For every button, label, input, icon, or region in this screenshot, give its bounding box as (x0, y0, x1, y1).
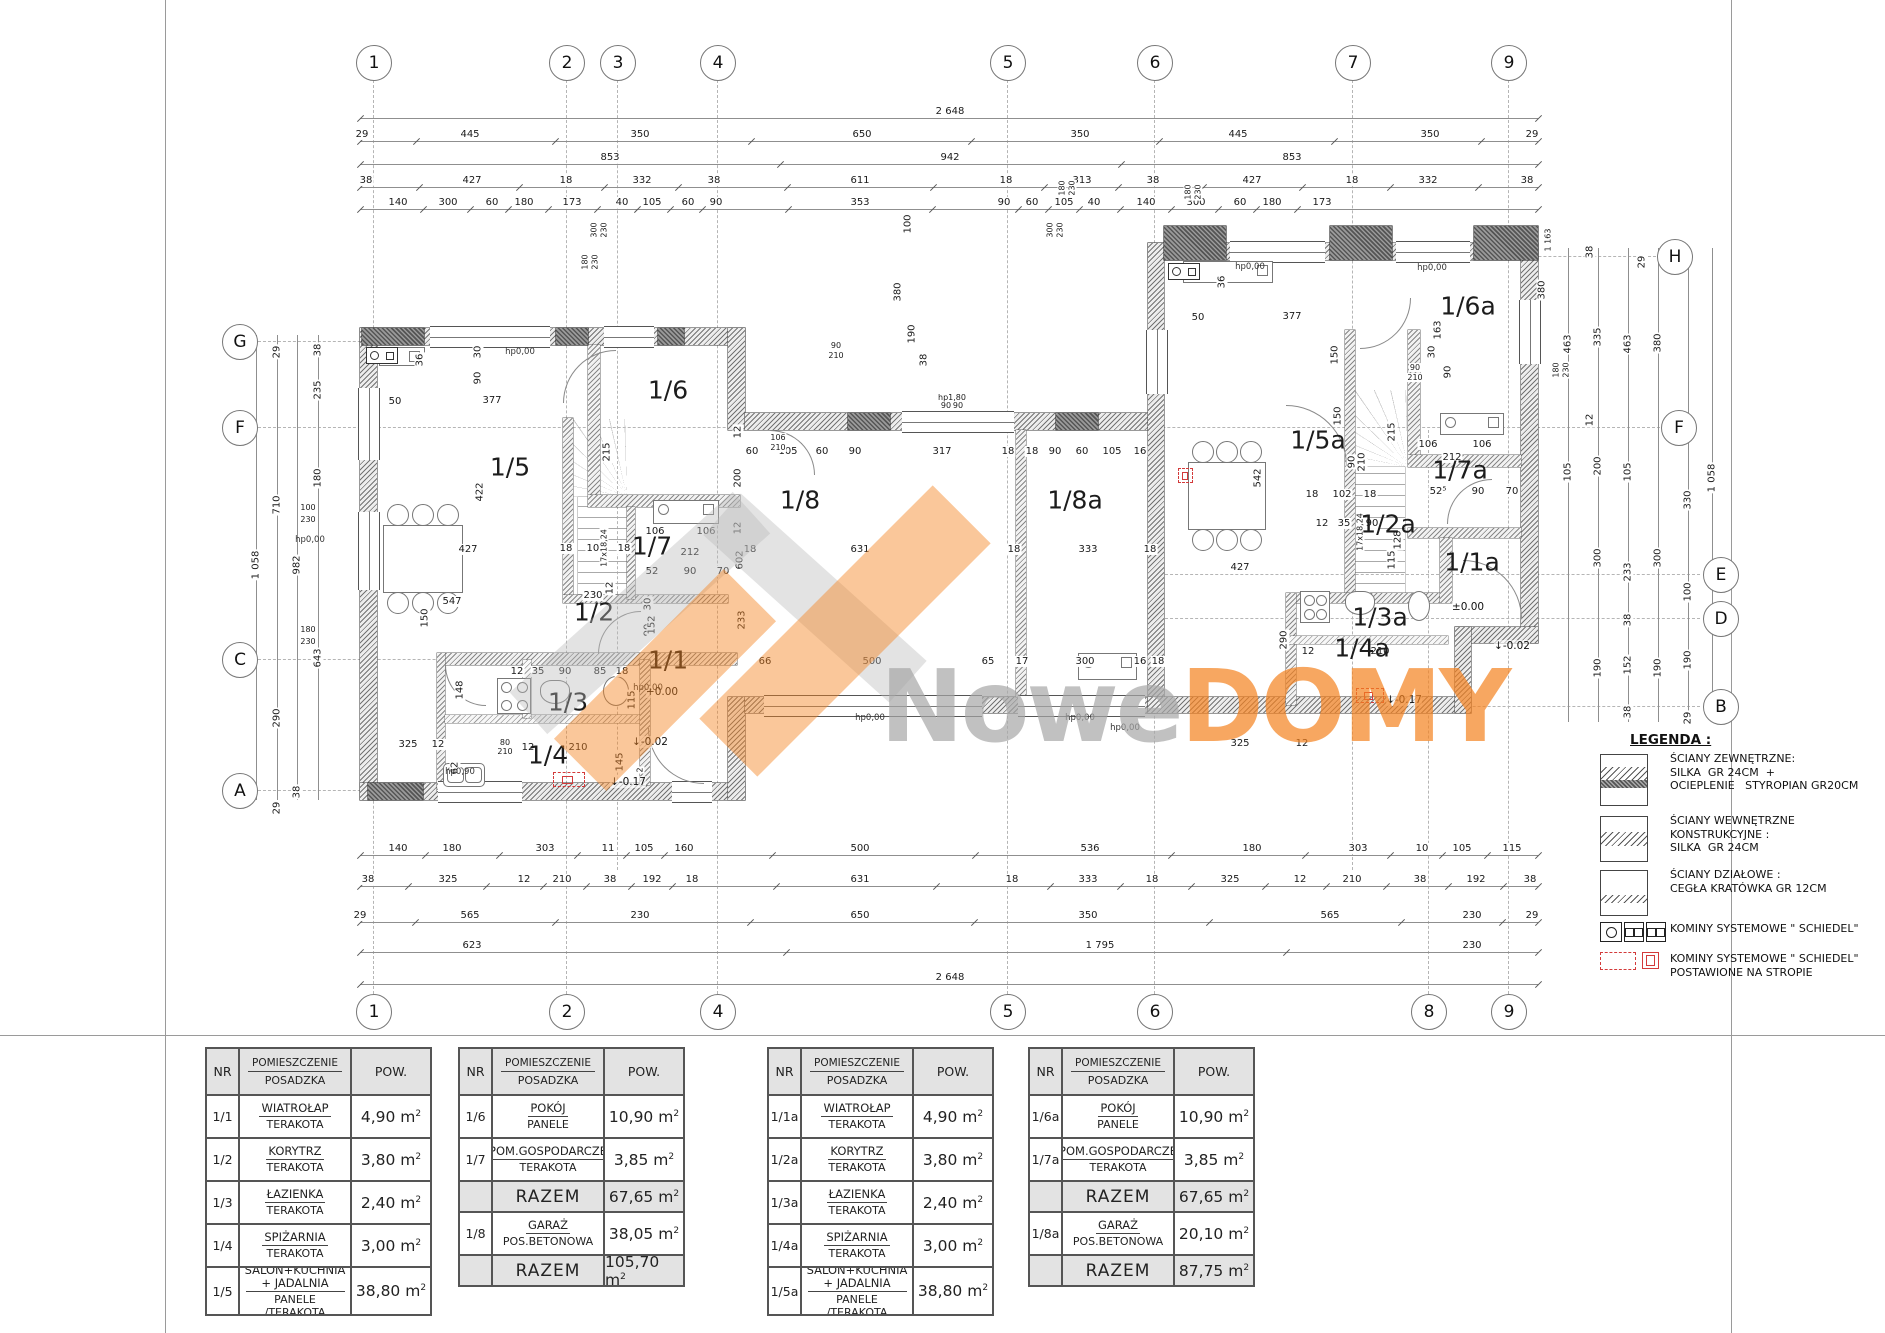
dimension-label: 105 (1563, 461, 1574, 482)
legend: LEGENDA : ŚCIANY ZEWNĘTRZNE: SILKA GR 24… (1596, 732, 1885, 972)
dimension-label: 325 (437, 874, 458, 885)
dimension-label: 290 (272, 707, 283, 728)
dimension-label: 710 (272, 494, 283, 515)
legend-chimney-icon (1646, 922, 1666, 942)
dimension-label: 180 (1241, 843, 1262, 854)
dimension-label: 300 (1593, 547, 1604, 568)
legend-items: ŚCIANY ZEWNĘTRZNE: SILKA GR 24CM + OCIEP… (1596, 752, 1885, 972)
table-razem-area: 105,70 m2 (604, 1255, 684, 1286)
dimension-label: 192 (1465, 874, 1486, 885)
dimension-label: 565 (459, 910, 480, 921)
dimension-label: 90 (1471, 486, 1486, 497)
dimension-label: 60 (745, 446, 760, 457)
dimension-label: 210 (1357, 451, 1368, 472)
chimney-icon (366, 347, 398, 364)
floor-plan-sheet: { "watermark":{"text_gray":"Nowe","text_… (0, 0, 1885, 1333)
dimension-label: 180 (1261, 197, 1282, 208)
dimension-label: 602 (735, 549, 746, 570)
table-cell-area: 38,80 m2 (351, 1267, 431, 1315)
room-schedule-table: NRPOMIESZCZENIEPOSADZKAPOW.1/6aPOKÓJPANE… (1028, 1047, 1255, 1287)
table-cell-nr: 1/7 (459, 1138, 492, 1181)
chimney-red-icon (553, 772, 585, 787)
legend-item-text: ŚCIANY WEWNĘTRZNE KONSTRUKCYJNE : SILKA … (1670, 814, 1795, 855)
dimension-label: 150 (420, 607, 431, 628)
dimension-label: 445 (1227, 129, 1248, 140)
dimension-label: 38 (1623, 613, 1634, 628)
dimension-label: 210 (827, 351, 844, 360)
dimension-label: 17 (1015, 656, 1030, 667)
dimension-label: 631 (849, 874, 870, 885)
table-header-room: POMIESZCZENIEPOSADZKA (492, 1048, 604, 1095)
dimension-label: 52 (645, 566, 660, 577)
table-cell-room: SALON+KUCHNIA+ JADALNIAPANELE /TERAKOTA (239, 1267, 351, 1315)
dimension-tick (1535, 852, 1542, 859)
dimension-label: 18 (617, 543, 632, 554)
dimension-label: 190 (1653, 657, 1664, 678)
dimension-label: 80 (499, 738, 511, 747)
chair-icon (437, 504, 459, 526)
dimension-label: 212 (679, 547, 700, 558)
dimension-label: 30 (1427, 345, 1438, 360)
dimension-label: 2 648 (935, 972, 966, 983)
chair-icon (1240, 441, 1262, 463)
dimension-label: 18 (1345, 175, 1360, 186)
dimension-label: 50 (388, 396, 403, 407)
chair-icon (1240, 529, 1262, 551)
table-cell-area: 10,90 m2 (1174, 1095, 1254, 1138)
legend-swatch-partition-wall (1600, 870, 1648, 916)
chimney-wall-block (1330, 226, 1392, 260)
chimney-red-icon (1356, 688, 1384, 703)
dimension-label: 29 (1525, 910, 1540, 921)
dimension-label: 60 (1025, 197, 1040, 208)
table-cell-area: 2,40 m2 (913, 1181, 993, 1224)
dimension-label: 230 (299, 637, 316, 646)
door-swing (1360, 298, 1411, 349)
dimension-label: 190 (1683, 649, 1694, 670)
dimension-label: 18 (685, 874, 700, 885)
dimension-label: 427 (1241, 175, 1262, 186)
dimension-label: 38 (292, 785, 303, 800)
table-cell-room: SPIŻARNIATERAKOTA (239, 1224, 351, 1267)
dimension-label: 140 (387, 843, 408, 854)
dimension-label: 317 (931, 446, 952, 457)
dimension-label: 38 (1585, 245, 1596, 260)
dimension-label: 60 (681, 197, 696, 208)
dimension-label: 106 (1417, 439, 1438, 450)
dimension-line (360, 187, 1538, 188)
dimension-label: 303 (534, 843, 555, 854)
table-cell-nr: 1/7a (1029, 1138, 1062, 1181)
room-label: 1/5a (1290, 426, 1346, 455)
dimension-label: 180 (513, 197, 534, 208)
dimension-label: 12 (431, 739, 446, 750)
room-label: 1/8 (780, 486, 820, 515)
level-label: ↓-0.02 (632, 736, 668, 748)
dimension-label: 152 (647, 614, 658, 635)
wall-ext (1148, 243, 1164, 713)
dimension-label: 38 (919, 353, 930, 368)
table-header-area: POW. (1174, 1048, 1254, 1095)
wall-ext (728, 697, 745, 800)
table-cell-room: POKÓJPANELE (1062, 1095, 1174, 1138)
dimension-label: 140 (387, 197, 408, 208)
dimension-label: 2 (636, 766, 645, 773)
legend-chimney-red-icon (1642, 952, 1659, 969)
dimension-label: 335 (1593, 326, 1604, 347)
room-label: 1/3 (548, 688, 588, 717)
legend-hatch (1601, 832, 1647, 846)
dimension-label: 90 (1409, 363, 1421, 372)
table-cell-nr: 1/3 (206, 1181, 239, 1224)
table-icon (383, 525, 463, 593)
window (1146, 330, 1168, 394)
legend-hatch (1601, 767, 1647, 780)
dimension-line (360, 952, 1538, 953)
grid-bubble-top: 1 (356, 45, 392, 81)
room-label: 1/8a (1047, 486, 1103, 515)
door-swing (445, 665, 486, 706)
window-sill-label: hp0,00 (505, 347, 535, 357)
dimension-label: 18 (1151, 656, 1166, 667)
table-header-room: POMIESZCZENIEPOSADZKA (801, 1048, 913, 1095)
dimension-label: 38 (1623, 705, 1634, 720)
dimension-label: 18 (615, 666, 630, 677)
window-sill-label: hp0,00 (855, 713, 885, 723)
room-schedule-table: NRPOMIESZCZENIEPOSADZKAPOW.1/1WIATROŁAPT… (205, 1047, 432, 1316)
dimension-label: 611 (849, 175, 870, 186)
table-cell-area: 3,85 m2 (1174, 1138, 1254, 1181)
washbasin-icon (1408, 591, 1430, 621)
grid-line-horizontal (1160, 574, 1700, 575)
dimension-label: 90 (473, 371, 484, 386)
dimension-line (277, 335, 278, 800)
dimension-label: 35 (531, 666, 546, 677)
grid-bubble-right: E (1703, 557, 1739, 593)
chimney-wall-block (1164, 226, 1226, 260)
table-cell-room: GARAŻPOS.BETONOWA (1062, 1212, 1174, 1255)
dimension-label: 17x18,24 (600, 528, 609, 568)
door-swing (563, 350, 616, 403)
chimney-wall-block (362, 328, 424, 345)
chair-icon (1216, 529, 1238, 551)
dimension-label: 547 (441, 596, 462, 607)
dimension-label: 12 (517, 874, 532, 885)
room-label: 1/3a (1352, 603, 1408, 632)
dimension-label: 650 (851, 129, 872, 140)
dimension-label: 90 (940, 401, 952, 410)
dimension-label: 180 (313, 467, 324, 488)
dimension-label: 18 (1145, 874, 1160, 885)
table-cell-room: WIATROŁAPTERAKOTA (239, 1095, 351, 1138)
room-label: 1/4 (528, 741, 568, 770)
grid-bubble-top: 5 (990, 45, 1026, 81)
dimension-label: 350 (629, 129, 650, 140)
dimension-label: 853 (599, 152, 620, 163)
table-cell-nr: 1/8 (459, 1212, 492, 1255)
dimension-label: 1 058 (1707, 463, 1718, 494)
window-sill-label: hp0,00 (1417, 263, 1447, 273)
dimension-label: 200 (1593, 455, 1604, 476)
table-header-room: POMIESZCZENIEPOSADZKA (239, 1048, 351, 1095)
dimension-label: 29 (272, 801, 283, 816)
dimension-label: 60 (815, 446, 830, 457)
dimension-label: 115 (1387, 549, 1398, 570)
room-label: 1/6 (648, 376, 688, 405)
dimension-label: 105 (641, 197, 662, 208)
dimension-label: 106 (695, 526, 716, 537)
dimension-label: 18 (1005, 874, 1020, 885)
dimension-label: 215 (1387, 421, 1398, 442)
chimney-wall-block (368, 783, 423, 800)
dimension-label: 148 (455, 679, 466, 700)
grid-bubble-left: A (222, 773, 258, 809)
grid-bubble-right: H (1657, 239, 1693, 275)
stove-icon (497, 678, 531, 714)
room-label: 1/7a (1432, 456, 1488, 485)
dimension-label: 90 (848, 446, 863, 457)
window (604, 326, 654, 348)
dimension-label: 140 (1135, 197, 1156, 208)
dimension-label: 38 (1523, 874, 1538, 885)
table-razem-nr (1029, 1181, 1062, 1212)
dimension-label: 30 (473, 345, 484, 360)
dimension-label: 90 (558, 666, 573, 677)
dimension-label: 325 (1229, 738, 1250, 749)
dimension-label: 90 (1048, 446, 1063, 457)
dimension-label: 330 (1683, 489, 1694, 510)
dimension-label: 1 163 (1544, 228, 1553, 253)
dimension-line (360, 209, 1538, 210)
dimension-label: 1 795 (1085, 940, 1116, 951)
wall-ext (1455, 627, 1471, 713)
dimension-label: 210 (1406, 373, 1423, 382)
dimension-label: 180 (299, 625, 316, 634)
table-razem-nr (459, 1181, 492, 1212)
window (1396, 241, 1470, 263)
room-label: 1/6a (1440, 292, 1496, 321)
dimension-line (360, 164, 1538, 165)
grid-bubble-top: 9 (1491, 45, 1527, 81)
dimension-label: 16 (1133, 446, 1148, 457)
room-label: 1/5 (490, 453, 530, 482)
dimension-label: 152 (1623, 654, 1634, 675)
dimension-label: 173 (1311, 197, 1332, 208)
dimension-label: 105 (1101, 446, 1122, 457)
table-cell-nr: 1/1 (206, 1095, 239, 1138)
grid-bubble-bottom: 5 (990, 994, 1026, 1030)
dimension-label: 90 (1443, 365, 1454, 380)
dimension-label: 29 (353, 910, 368, 921)
dimension-label: 623 (461, 940, 482, 951)
legend-swatch-exterior-wall (1600, 754, 1648, 806)
grid-bubble-bottom: 8 (1411, 994, 1447, 1030)
dimension-label: 36 (1217, 275, 1228, 290)
dimension-label: 105 (633, 843, 654, 854)
dimension-label: 18 (1143, 544, 1158, 555)
dimension-label: 332 (631, 175, 652, 186)
window-sill-label: hp0,90 (445, 767, 475, 777)
dimension-label: 18 (559, 175, 574, 186)
dimension-line (360, 886, 1538, 887)
table-cell-room: POM.GOSPODARCZETERAKOTA (492, 1138, 604, 1181)
dimension-label: 50 (1191, 312, 1206, 323)
dimension-label: 230 (591, 253, 600, 270)
room-label: 1/2a (1360, 510, 1416, 539)
table-cell-room: KORYTRZTERAKOTA (239, 1138, 351, 1181)
window-sill-label: hp0,00 (633, 683, 663, 693)
wall-ext (1148, 697, 1471, 713)
dimension-label: 29 (1683, 711, 1694, 726)
dimension-tick (1535, 981, 1542, 988)
dimension-label: 300 (1074, 656, 1095, 667)
legend-item-text: KOMINY SYSTEMOWE " SCHIEDEL" POSTAWIONE … (1670, 952, 1859, 979)
table-cell-room: KORYTRZTERAKOTA (801, 1138, 913, 1181)
grid-bubble-bottom: 2 (549, 994, 585, 1030)
grid-bubble-top: 2 (549, 45, 585, 81)
dimension-label: 380 (1537, 279, 1548, 300)
chimney-wall-block (1474, 226, 1538, 260)
dimension-line (360, 922, 1538, 923)
table-razem-area: 67,65 m2 (1174, 1181, 1254, 1212)
room-schedule-table: NRPOMIESZCZENIEPOSADZKAPOW.1/6POKÓJPANEL… (458, 1047, 685, 1287)
dimension-label: 650 (849, 910, 870, 921)
dimension-label: 233 (737, 609, 748, 630)
dimension-label: 38 (603, 874, 618, 885)
window (902, 411, 1014, 433)
dimension-tick (1535, 949, 1542, 956)
dimension-tick (1535, 206, 1542, 213)
dimension-label: 106 (769, 433, 786, 442)
legend-chimney-icon (1600, 922, 1622, 942)
grid-line-horizontal (1160, 618, 1700, 619)
dimension-label: 200 (733, 467, 744, 488)
dimension-label: 353 (849, 197, 870, 208)
room-label: 1/7 (632, 532, 672, 561)
dimension-label: 40 (615, 197, 630, 208)
dimension-line (318, 335, 319, 800)
washbasin-icon (603, 676, 629, 706)
dimension-label: 38 (361, 874, 376, 885)
table-cell-area: 3,85 m2 (604, 1138, 684, 1181)
dimension-label: 427 (457, 544, 478, 555)
table-cell-area: 4,90 m2 (351, 1095, 431, 1138)
dimension-label: 12 (1301, 646, 1316, 657)
dimension-line (360, 855, 1538, 856)
dimension-label: 38 (707, 175, 722, 186)
dimension-label: 303 (1347, 843, 1368, 854)
dimension-label: 350 (1077, 910, 1098, 921)
table-header-nr: NR (768, 1048, 801, 1095)
chimney-wall-block (658, 328, 684, 345)
kitchen-counter-icon (653, 500, 719, 524)
window-sill-label: hp0,00 (1065, 713, 1095, 723)
table-cell-nr: 1/8a (1029, 1212, 1062, 1255)
grid-bubble-bottom: 9 (1491, 994, 1527, 1030)
dimension-label: 90 (709, 197, 724, 208)
table-cell-area: 3,00 m2 (913, 1224, 993, 1267)
legend-swatch-interior-wall (1600, 816, 1648, 862)
dimension-line (1658, 248, 1659, 722)
dimension-label: 38 (359, 175, 374, 186)
legend-item-text: ŚCIANY ZEWNĘTRZNE: SILKA GR 24CM + OCIEP… (1670, 752, 1858, 793)
table-cell-room: SPIŻARNIATERAKOTA (801, 1224, 913, 1267)
dimension-label: 445 (459, 129, 480, 140)
dimension-label: 230 (629, 910, 650, 921)
dimension-label: 235 (313, 379, 324, 400)
dimension-label: 160 (673, 843, 694, 854)
dimension-label: 500 (861, 656, 882, 667)
dimension-label: 18 (1363, 489, 1378, 500)
window (672, 781, 712, 803)
table-razem-label: RAZEM (492, 1255, 604, 1286)
dimension-label: 12 (1295, 738, 1310, 749)
chair-icon (387, 504, 409, 526)
window (358, 388, 380, 460)
level-label: ↓-0.17 (610, 776, 646, 788)
legend-hatch (1601, 895, 1647, 903)
dimension-label: 230 (1194, 183, 1203, 200)
table-cell-nr: 1/5a (768, 1267, 801, 1315)
table-cell-room: ŁAZIENKATERAKOTA (801, 1181, 913, 1224)
dimension-label: 90 (683, 566, 698, 577)
dimension-label: 90 (830, 341, 842, 350)
wall-ext (728, 328, 745, 430)
level-label: ↓-0.02 (1494, 640, 1530, 652)
dimension-line (360, 141, 1538, 142)
grid-bubble-top: 7 (1335, 45, 1371, 81)
dimension-label: 536 (1079, 843, 1100, 854)
chimney-icon (1168, 263, 1200, 280)
dimension-label: 210 (496, 747, 513, 756)
grid-bubble-bottom: 1 (356, 994, 392, 1030)
dimension-label: 105 (1053, 197, 1074, 208)
dimension-label: 70 (716, 566, 731, 577)
table-razem-area: 87,75 m2 (1174, 1255, 1254, 1286)
dimension-label: 38 (1413, 874, 1428, 885)
window (1230, 241, 1325, 263)
table-cell-room: POM.GOSPODARCZETERAKOTA (1062, 1138, 1174, 1181)
dimension-label: 350 (1419, 129, 1440, 140)
dimension-label: 66 (758, 656, 773, 667)
table-cell-nr: 1/6a (1029, 1095, 1062, 1138)
window-sill-label: hp0,00 (1235, 262, 1265, 272)
chimney-red-icon (1178, 468, 1193, 483)
table-cell-nr: 1/4a (768, 1224, 801, 1267)
dimension-label: 60 (485, 197, 500, 208)
table-cell-nr: 1/2a (768, 1138, 801, 1181)
dimension-label: 173 (561, 197, 582, 208)
table-cell-room: WIATROŁAPTERAKOTA (801, 1095, 913, 1138)
grid-bubble-bottom: 4 (700, 994, 736, 1030)
dimension-label: 190 (907, 323, 918, 344)
dimension-line (360, 984, 1538, 985)
dimension-label: 12 (1315, 518, 1330, 529)
dimension-label: 180 (581, 253, 590, 270)
room-label: 1/1 (648, 646, 688, 675)
table-cell-room: SALON+KUCHNIA+ JADALNIAPANELE /TERAKOTA (801, 1267, 913, 1315)
grid-bubble-bottom: 6 (1137, 994, 1173, 1030)
wall-int (1408, 528, 1521, 538)
dimension-label: 180 (441, 843, 462, 854)
dimension-label: 106 (1471, 439, 1492, 450)
dimension-label: 90 (952, 401, 964, 410)
grid-bubble-left: G (222, 324, 258, 360)
dimension-label: hp1,80 (937, 393, 967, 402)
grid-bubble-right: B (1703, 689, 1739, 725)
dimension-label: 422 (475, 481, 486, 502)
kitchen-counter-icon (1440, 413, 1504, 435)
